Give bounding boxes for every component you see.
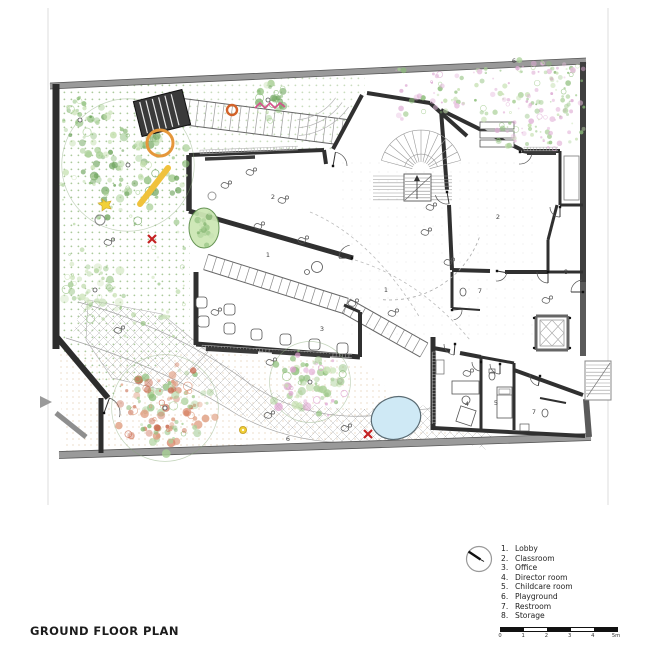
svg-text:1: 1: [266, 251, 270, 259]
svg-text:8: 8: [564, 268, 568, 276]
svg-text:2: 2: [496, 213, 500, 221]
oval-tree: [189, 208, 219, 248]
legend-item: 4.Director room: [501, 573, 573, 583]
svg-text:7: 7: [478, 287, 482, 295]
legend-item: 8.Storage: [501, 611, 573, 621]
svg-text:6: 6: [512, 57, 516, 65]
drawing-sheet: 221137845766 1.Lobby2.Classroom3.Office4…: [0, 0, 650, 669]
legend-item: 7.Restroom: [501, 602, 573, 612]
scale-bar-ticks: 012345m: [500, 632, 618, 640]
legend-item: 3.Office: [501, 563, 573, 573]
legend-item: 5.Childcare room: [501, 582, 573, 592]
svg-text:3: 3: [320, 325, 324, 333]
entry-arrow: [40, 396, 52, 408]
north-arrow-compass: [463, 544, 495, 576]
svg-text:2: 2: [271, 193, 275, 201]
legend: 1.Lobby2.Classroom3.Office4.Director roo…: [501, 544, 573, 621]
legend-item: 6.Playground: [501, 592, 573, 602]
svg-text:5: 5: [494, 399, 498, 407]
svg-text:1: 1: [384, 286, 388, 294]
plan-title: GROUND FLOOR PLAN: [30, 624, 179, 638]
scale-bar: 012345m: [500, 627, 618, 640]
svg-text:7: 7: [532, 408, 536, 416]
legend-item: 1.Lobby: [501, 544, 573, 554]
svg-text:6: 6: [286, 435, 290, 443]
legend-item: 2.Classroom: [501, 554, 573, 564]
svg-text:4: 4: [465, 400, 469, 408]
